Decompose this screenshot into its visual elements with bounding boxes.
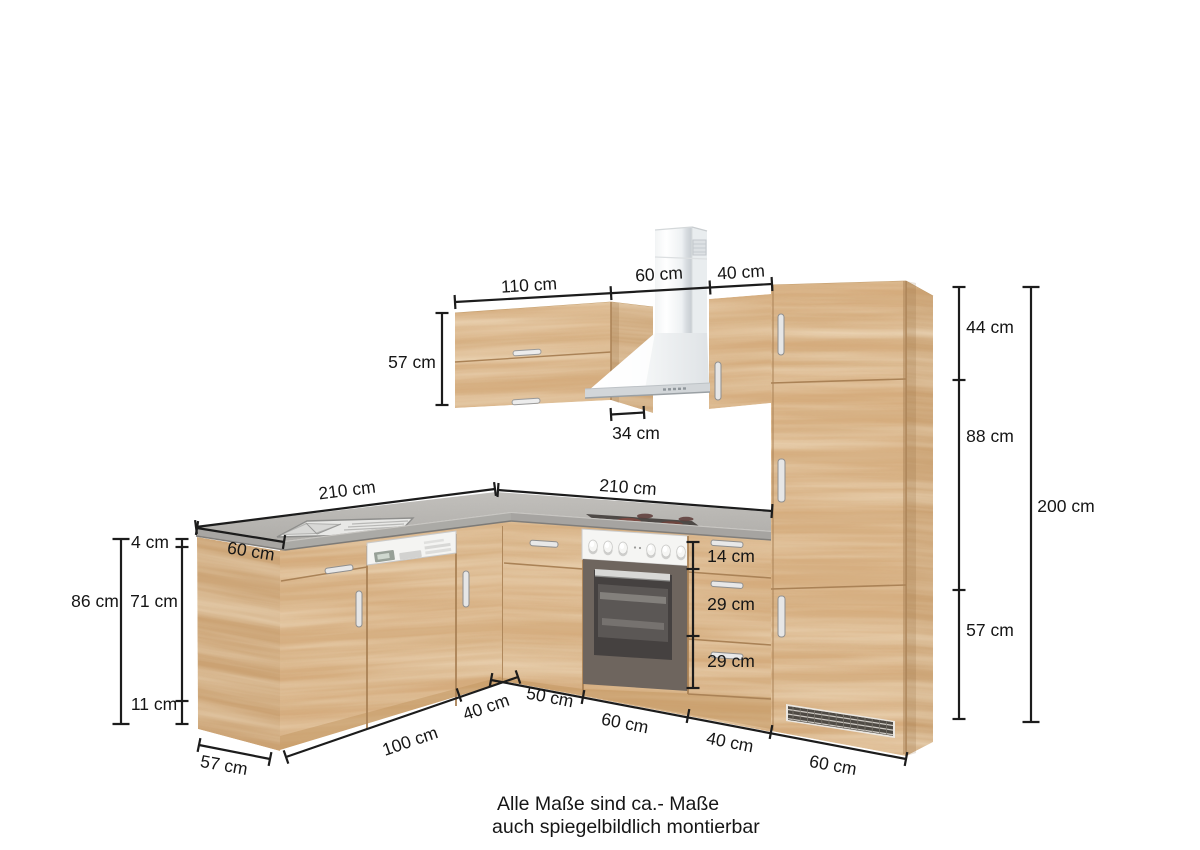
svg-text:71 cm: 71 cm <box>130 591 178 611</box>
svg-text:200 cm: 200 cm <box>1037 496 1094 516</box>
svg-text:86 cm: 86 cm <box>71 591 119 611</box>
svg-text:40 cm: 40 cm <box>717 261 766 284</box>
svg-text:14 cm: 14 cm <box>707 546 755 566</box>
svg-text:210 cm: 210 cm <box>599 475 658 499</box>
svg-text:60 cm: 60 cm <box>635 263 684 286</box>
svg-text:57 cm: 57 cm <box>388 352 436 372</box>
svg-text:110 cm: 110 cm <box>500 273 557 296</box>
svg-text:34 cm: 34 cm <box>612 423 660 443</box>
svg-text:Alle Maße sind ca.- Maße: Alle Maße sind ca.- Maße <box>497 793 719 815</box>
svg-text:4 cm: 4 cm <box>131 532 169 552</box>
svg-text:29 cm: 29 cm <box>707 594 755 614</box>
svg-text:88 cm: 88 cm <box>966 426 1014 446</box>
svg-text:44 cm: 44 cm <box>966 317 1014 337</box>
svg-text:auch spiegelbildlich montierba: auch spiegelbildlich montierbar <box>492 816 760 838</box>
svg-text:11 cm: 11 cm <box>131 694 177 714</box>
svg-text:57 cm: 57 cm <box>966 620 1014 640</box>
svg-text:29 cm: 29 cm <box>707 651 755 671</box>
